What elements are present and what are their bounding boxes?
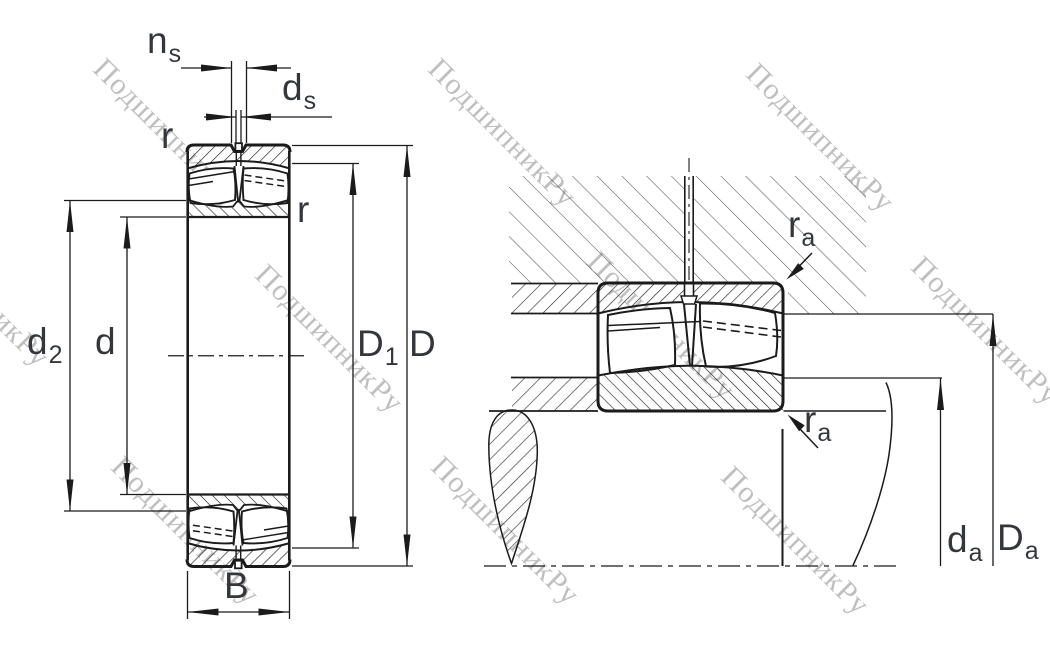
dim-label-r-inner: r <box>297 191 309 230</box>
dim-label-d: d <box>95 323 116 362</box>
bearing-drawing-page: ПодшипникРуПодшипникРуПодшипникРуПодшипн… <box>0 0 1050 650</box>
dim-label-D1: D1 <box>357 325 399 364</box>
right-figure-mounting-section <box>484 158 997 566</box>
dim-label-d2: d2 <box>27 323 62 362</box>
dim-label-ns: ns <box>147 22 181 61</box>
dim-label-Da: Da <box>997 519 1039 558</box>
dim-label-ra-bottom: ra <box>804 401 831 440</box>
dim-label-ds: ds <box>282 69 316 108</box>
dim-label-da: da <box>947 521 982 560</box>
dim-label-D: D <box>409 325 436 364</box>
dim-label-ra-top: ra <box>788 206 815 245</box>
bearing-drawing-svg <box>0 0 1050 650</box>
dim-label-r-outer: r <box>161 117 173 156</box>
dim-label-B: B <box>224 567 249 606</box>
